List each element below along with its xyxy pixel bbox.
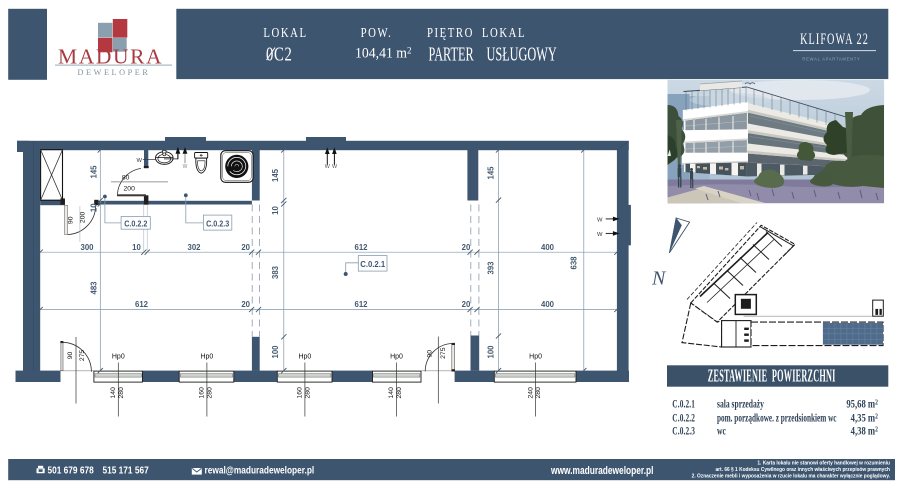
svg-text:240: 240 — [527, 387, 534, 399]
svg-text:2. Oznaczenie mebli i wyposaże: 2. Oznaczenie mebli i wyposażenia w rzuc… — [692, 473, 891, 479]
svg-text:90: 90 — [427, 350, 434, 358]
svg-text:20: 20 — [462, 243, 471, 252]
svg-text:wc: wc — [717, 425, 726, 438]
svg-text:4,35 m2: 4,35 m2 — [851, 412, 879, 424]
svg-text:145: 145 — [487, 166, 496, 180]
svg-text:275: 275 — [79, 350, 86, 362]
svg-text:140: 140 — [110, 387, 117, 399]
svg-text:280: 280 — [396, 387, 403, 399]
svg-text:Hp0: Hp0 — [200, 354, 213, 361]
svg-text:302: 302 — [187, 243, 201, 252]
svg-text:10: 10 — [132, 243, 141, 252]
svg-text:4,38 m2: 4,38 m2 — [851, 425, 879, 437]
svg-text:W: W — [183, 164, 188, 170]
svg-text:200: 200 — [124, 185, 136, 192]
svg-text:C.0.2.2: C.0.2.2 — [672, 412, 695, 425]
svg-text:Hp0: Hp0 — [390, 354, 403, 361]
svg-text:LOKAL: LOKAL — [482, 25, 526, 41]
svg-text:160: 160 — [199, 387, 206, 399]
svg-text:300: 300 — [80, 243, 94, 252]
svg-text:REWAL APARTAMENTY: REWAL APARTAMENTY — [802, 57, 860, 62]
svg-text:W: W — [137, 158, 143, 164]
svg-text:638: 638 — [570, 256, 579, 270]
svg-text:POW.: POW. — [361, 25, 393, 41]
svg-text:PARTER: PARTER — [429, 43, 474, 66]
svg-text:200: 200 — [79, 212, 86, 224]
svg-text:400: 400 — [541, 243, 555, 252]
svg-text:20: 20 — [462, 300, 471, 309]
svg-text:C.0.2.1: C.0.2.1 — [672, 398, 695, 411]
svg-text:383: 383 — [271, 265, 280, 279]
svg-text:280: 280 — [118, 387, 125, 399]
svg-text:LOKAL: LOKAL — [263, 25, 307, 41]
svg-text:145: 145 — [90, 165, 99, 179]
svg-text:10: 10 — [271, 206, 280, 215]
svg-text:W: W — [332, 164, 338, 170]
svg-text:20: 20 — [241, 300, 250, 309]
svg-text:W: W — [325, 164, 331, 170]
svg-text:C.0.2.1: C.0.2.1 — [360, 259, 385, 268]
svg-text:N: N — [651, 268, 667, 290]
svg-text:ZESTAWIENIE POWIERZCHNI: ZESTAWIENIE POWIERZCHNI — [708, 366, 836, 385]
svg-text:100: 100 — [487, 345, 496, 359]
svg-text:W: W — [597, 218, 603, 224]
svg-text:100: 100 — [271, 345, 280, 359]
svg-text:393: 393 — [487, 261, 496, 275]
svg-text:104,41 m2: 104,41 m2 — [355, 45, 412, 61]
svg-text:160: 160 — [297, 387, 304, 399]
svg-text:612: 612 — [354, 300, 368, 309]
svg-text:280: 280 — [206, 387, 213, 399]
svg-text:90: 90 — [67, 352, 74, 360]
svg-text:rewal@maduradeweloper.pl: rewal@maduradeweloper.pl — [205, 464, 315, 476]
svg-text:275: 275 — [440, 347, 447, 359]
svg-text:140: 140 — [388, 387, 395, 399]
svg-text:280: 280 — [304, 387, 311, 399]
svg-text:515 171 567: 515 171 567 — [103, 464, 149, 476]
svg-text:C.0.2.3: C.0.2.3 — [672, 425, 695, 438]
svg-text:sala sprzedaży: sala sprzedaży — [717, 398, 764, 411]
svg-text:90: 90 — [68, 216, 75, 224]
svg-text:DEWELOPER: DEWELOPER — [78, 68, 151, 77]
svg-text:C.0.2.2: C.0.2.2 — [124, 219, 147, 228]
svg-text:W: W — [597, 232, 603, 238]
svg-text:80: 80 — [122, 175, 130, 182]
svg-text:280: 280 — [535, 387, 542, 399]
svg-text:612: 612 — [354, 243, 368, 252]
svg-text:PIĘTRO: PIĘTRO — [427, 25, 474, 41]
svg-text:483: 483 — [90, 281, 99, 295]
svg-text:Hp0: Hp0 — [529, 354, 542, 361]
svg-text:Hp0: Hp0 — [112, 354, 125, 361]
svg-text:C.0.2.3: C.0.2.3 — [206, 219, 229, 228]
svg-text:USŁUGOWY: USŁUGOWY — [487, 43, 557, 66]
svg-text:www.maduradeweloper.pl: www.maduradeweloper.pl — [550, 465, 653, 477]
svg-text:KLIFOWA 22: KLIFOWA 22 — [800, 30, 869, 48]
svg-text:612: 612 — [135, 300, 149, 309]
svg-text:145: 145 — [271, 168, 280, 182]
svg-text:20: 20 — [241, 243, 250, 252]
svg-text:Hp0: Hp0 — [298, 354, 311, 361]
svg-text:pom. porządkowe. z przedsionki: pom. porządkowe. z przedsionkiem wc — [717, 412, 837, 425]
svg-text:10: 10 — [90, 203, 99, 212]
svg-text:501 679 678: 501 679 678 — [48, 464, 94, 476]
svg-text:95,68 m2: 95,68 m2 — [846, 398, 878, 410]
svg-text:400: 400 — [541, 300, 555, 309]
